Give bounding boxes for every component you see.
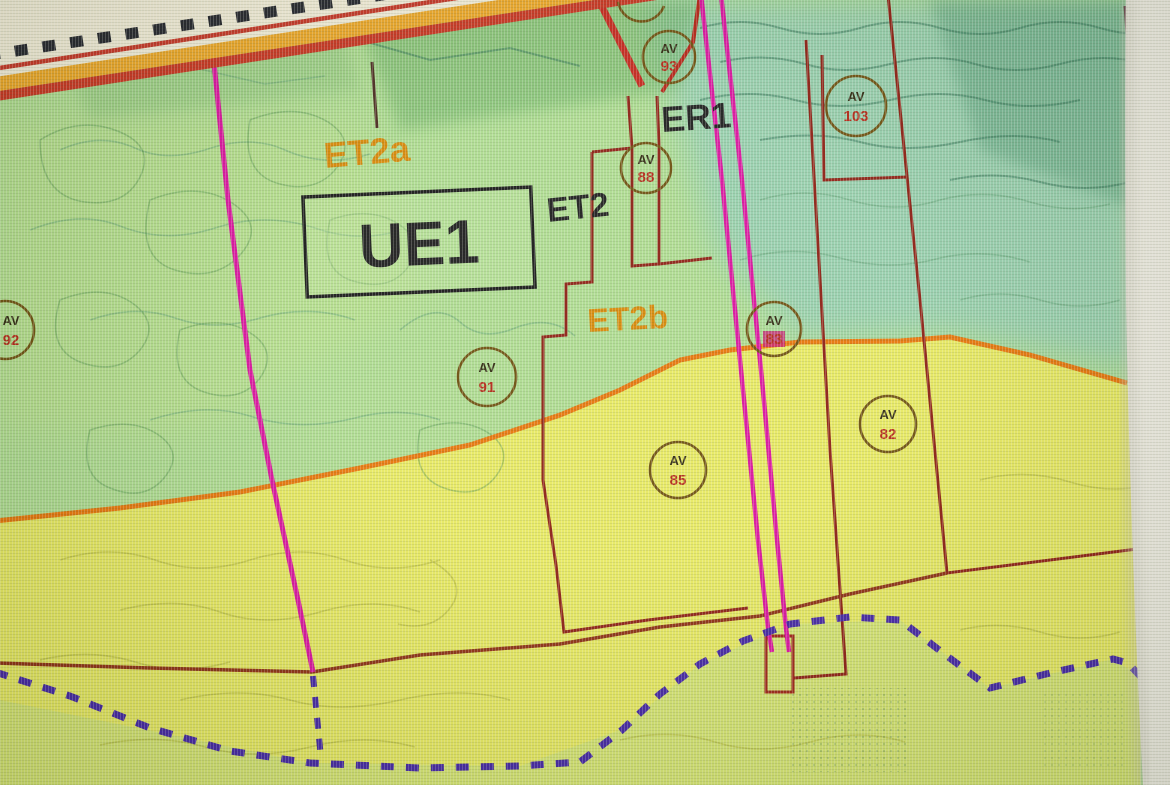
hatch-area [788, 688, 906, 772]
svg-text:AV: AV [765, 313, 782, 328]
svg-text:AV: AV [847, 89, 864, 104]
svg-text:91: 91 [479, 379, 496, 396]
zone-box-ue1: UE1 [303, 187, 535, 297]
svg-text:AV: AV [879, 407, 896, 422]
hatch-area-2 [1040, 690, 1126, 770]
svg-text:92: 92 [3, 332, 20, 349]
svg-text:AV: AV [660, 41, 677, 56]
svg-text:AV: AV [669, 453, 686, 468]
svg-text:83: 83 [766, 331, 783, 348]
zoning-map-canvas[interactable]: UE1 ET2a ET2 ER1 ET2b AV 93 AV 88 AV 103… [0, 0, 1170, 785]
svg-text:AV: AV [2, 313, 19, 328]
zone-label-et2b: ET2b [586, 298, 669, 339]
svg-text:AV: AV [637, 152, 654, 167]
zone-label-er1: ER1 [660, 94, 733, 140]
svg-text:85: 85 [670, 472, 687, 489]
svg-text:AV: AV [478, 360, 495, 375]
svg-text:93: 93 [661, 58, 678, 75]
zone-label-ue1: UE1 [357, 207, 481, 281]
zone-label-et2a: ET2a [322, 128, 412, 176]
zone-label-et2: ET2 [545, 186, 611, 230]
svg-text:88: 88 [638, 169, 655, 186]
svg-text:82: 82 [880, 426, 897, 443]
svg-text:103: 103 [843, 108, 868, 125]
